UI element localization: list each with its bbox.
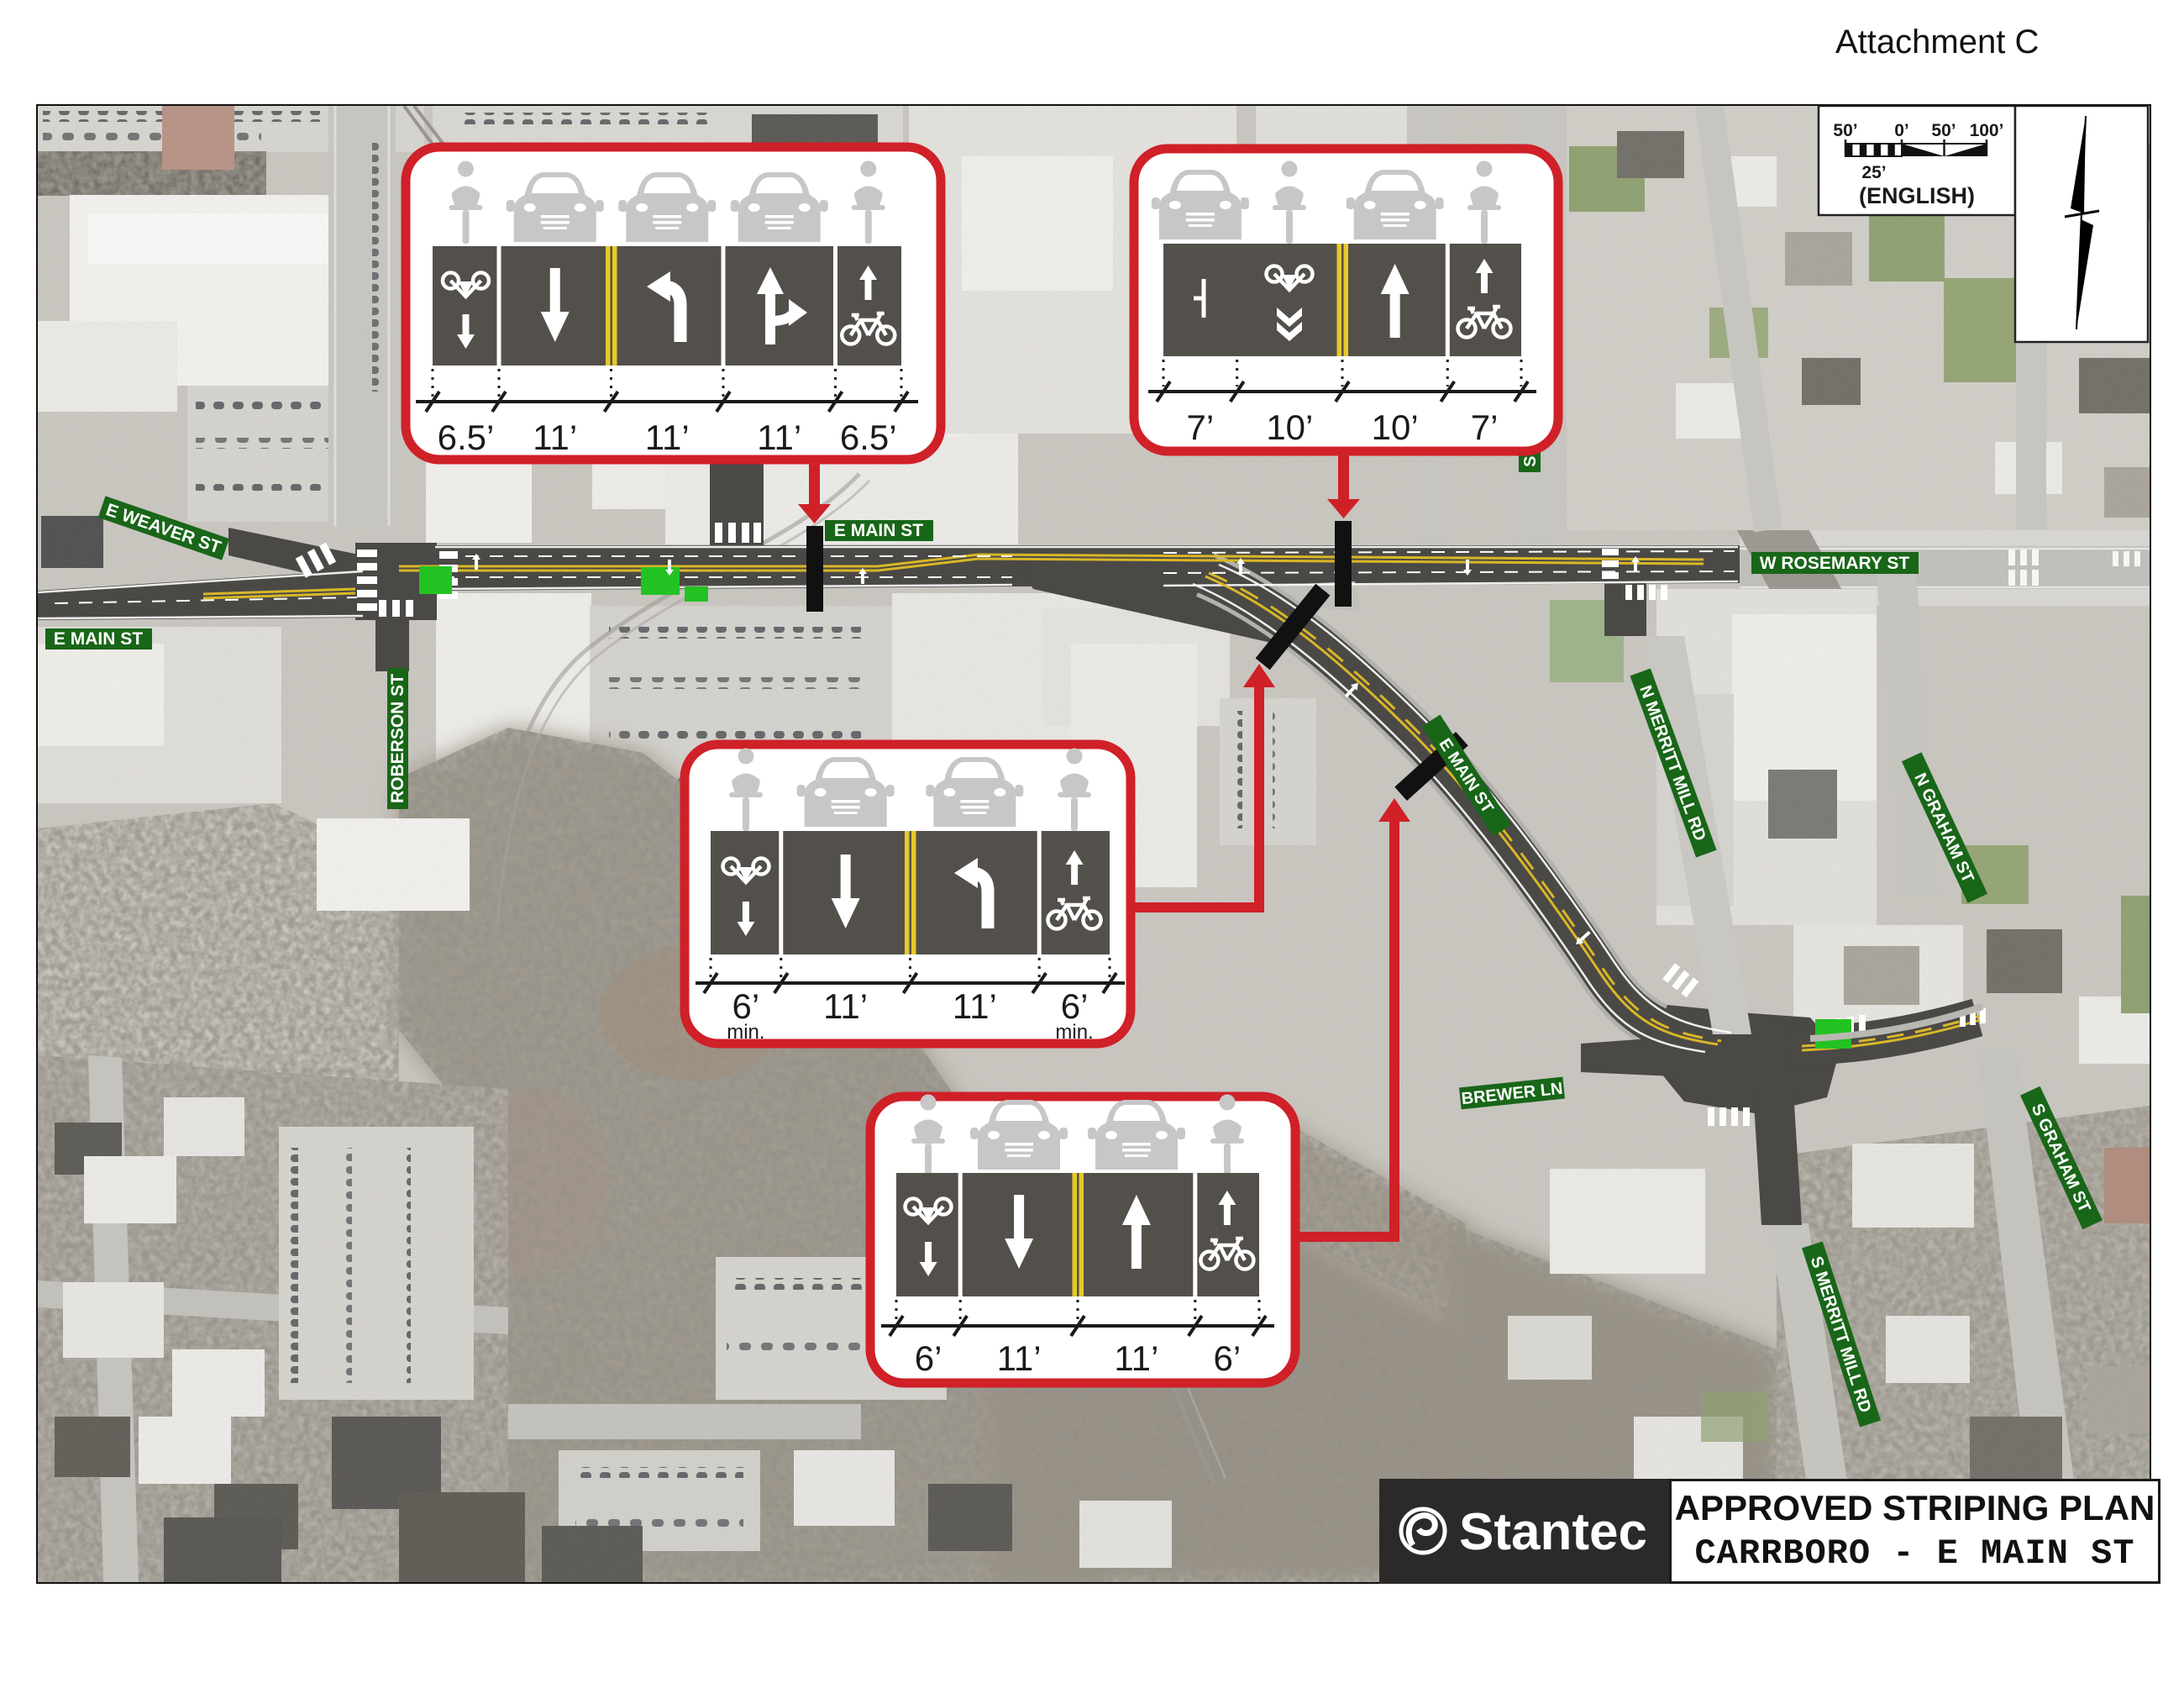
svg-text:ROBERSON ST: ROBERSON ST [388,674,407,803]
svg-text:11’: 11’ [757,418,801,457]
svg-text:11’: 11’ [533,418,577,457]
svg-text:50’: 50’ [1931,121,1956,140]
svg-text:6’: 6’ [732,986,760,1026]
svg-text:6’: 6’ [1214,1338,1242,1378]
svg-text:6’: 6’ [1061,986,1089,1026]
svg-text:25’: 25’ [1861,163,1886,182]
svg-text:Stantec: Stantec [1459,1503,1647,1561]
svg-text:min.: min. [1055,1021,1093,1044]
svg-text:E MAIN ST: E MAIN ST [54,629,143,649]
svg-text:10’: 10’ [1266,408,1313,447]
svg-text:min.: min. [727,1021,764,1044]
svg-text:6’: 6’ [915,1338,942,1378]
svg-text:W ROSEMARY ST: W ROSEMARY ST [1760,554,1910,573]
svg-text:7’: 7’ [1186,408,1214,447]
svg-text:11’: 11’ [1114,1338,1158,1378]
svg-text:6.5’: 6.5’ [438,418,495,457]
svg-text:0’: 0’ [1894,121,1909,140]
svg-text:E MAIN ST: E MAIN ST [834,521,923,540]
svg-text:11’: 11’ [645,418,690,457]
svg-text:100’: 100’ [1970,121,2004,140]
svg-text:11’: 11’ [953,986,997,1026]
svg-text:(ENGLISH): (ENGLISH) [1859,183,1975,208]
svg-text:11’: 11’ [997,1338,1042,1378]
svg-text:10’: 10’ [1372,408,1419,447]
svg-text:6.5’: 6.5’ [840,418,897,457]
svg-text:50’: 50’ [1833,121,1857,140]
svg-text:11’: 11’ [823,986,868,1026]
svg-text:7’: 7’ [1471,408,1499,447]
